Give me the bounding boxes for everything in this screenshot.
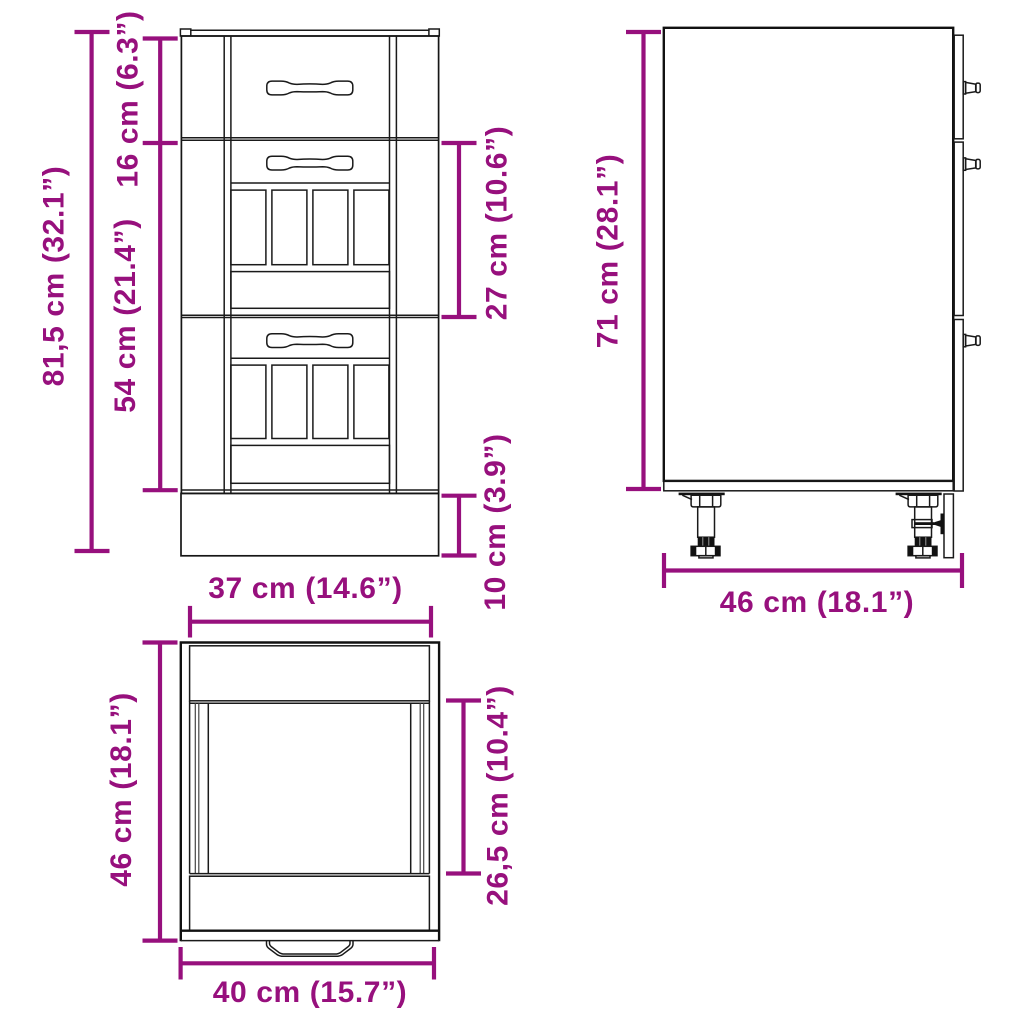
svg-text:37 cm (14.6”): 37 cm (14.6”) (208, 572, 403, 605)
svg-text:10 cm (3.9”): 10 cm (3.9”) (479, 433, 512, 610)
svg-text:81,5 cm (32.1”): 81,5 cm (32.1”) (38, 166, 71, 387)
svg-text:40 cm (15.7”): 40 cm (15.7”) (213, 976, 408, 1009)
svg-text:46 cm (18.1”): 46 cm (18.1”) (105, 692, 138, 887)
svg-text:27 cm (10.6”): 27 cm (10.6”) (481, 126, 514, 321)
svg-text:46 cm (18.1”): 46 cm (18.1”) (720, 586, 915, 619)
svg-text:26,5 cm (10.4”): 26,5 cm (10.4”) (482, 685, 515, 906)
svg-text:16 cm (6.3”): 16 cm (6.3”) (112, 10, 145, 187)
svg-text:54 cm (21.4”): 54 cm (21.4”) (109, 218, 142, 413)
svg-text:71 cm (28.1”): 71 cm (28.1”) (592, 154, 625, 349)
